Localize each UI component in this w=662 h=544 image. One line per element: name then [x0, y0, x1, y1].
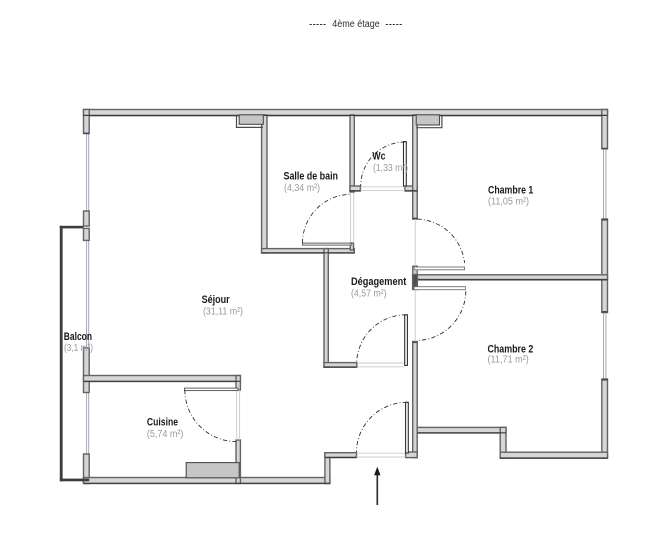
- svg-text:(11,71 m²): (11,71 m²): [488, 355, 529, 366]
- svg-text:Wc: Wc: [372, 151, 385, 163]
- svg-text:Salle de bain: Salle de bain: [284, 170, 339, 182]
- svg-text:4ème étage: 4ème étage: [332, 19, 380, 30]
- svg-text:(4,34 m²): (4,34 m²): [284, 183, 320, 194]
- svg-text:(5,74 m²): (5,74 m²): [147, 429, 184, 440]
- svg-text:Cuisine: Cuisine: [147, 417, 178, 429]
- svg-text:Dégagement: Dégagement: [351, 276, 407, 288]
- svg-text:(4,57 m²): (4,57 m²): [351, 289, 387, 300]
- svg-text:(3,1 m²): (3,1 m²): [64, 343, 93, 354]
- svg-text:Balcon: Balcon: [64, 331, 92, 343]
- svg-text:(1,33 m²): (1,33 m²): [373, 163, 408, 174]
- svg-text:Chambre 1: Chambre 1: [488, 185, 533, 197]
- svg-text:Séjour: Séjour: [202, 294, 231, 306]
- svg-text:(31,11 m²): (31,11 m²): [203, 307, 243, 318]
- svg-text:(11,05 m²): (11,05 m²): [488, 197, 529, 208]
